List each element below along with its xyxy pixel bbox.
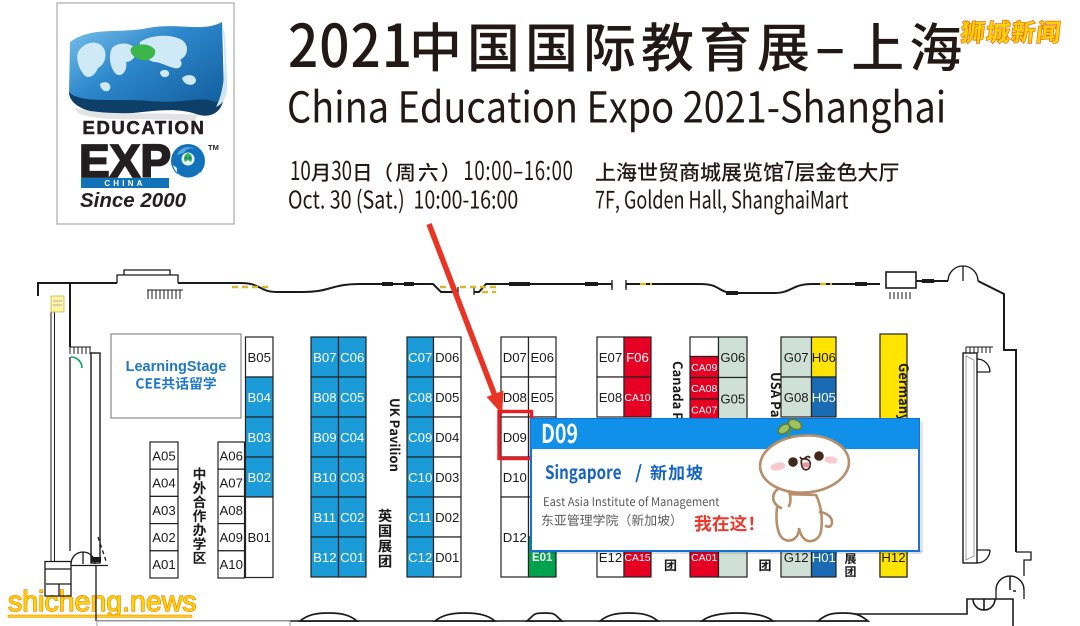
svg-text:B05: B05 <box>247 350 270 365</box>
svg-text:B10: B10 <box>313 470 336 485</box>
svg-text:Since 2000: Since 2000 <box>80 189 187 212</box>
svg-text:C05: C05 <box>340 390 364 405</box>
svg-text:D05: D05 <box>435 390 459 405</box>
svg-text:C11: C11 <box>409 510 432 525</box>
svg-text:C02: C02 <box>340 510 364 525</box>
svg-text:G08: G08 <box>784 390 809 405</box>
svg-text:D08: D08 <box>503 390 527 405</box>
svg-text:D12: D12 <box>503 530 527 545</box>
svg-text:F06: F06 <box>626 350 649 365</box>
svg-text:B04: B04 <box>247 390 270 405</box>
svg-text:LearningStage: LearningStage <box>126 359 227 375</box>
svg-text:C12: C12 <box>408 550 432 565</box>
svg-text:H06: H06 <box>812 350 836 365</box>
svg-text:D04: D04 <box>435 430 459 445</box>
svg-text:G06: G06 <box>720 350 745 365</box>
svg-text:C10: C10 <box>408 470 432 485</box>
svg-text:D06: D06 <box>435 350 459 365</box>
svg-text:C06: C06 <box>340 350 364 365</box>
svg-text:E08: E08 <box>599 390 622 405</box>
svg-text:G07: G07 <box>784 350 809 365</box>
svg-text:shicheng.news: shicheng.news <box>8 586 197 618</box>
svg-text:A02: A02 <box>152 530 175 545</box>
svg-text:A04: A04 <box>152 476 175 491</box>
svg-text:C03: C03 <box>340 470 364 485</box>
svg-text:D07: D07 <box>503 350 527 365</box>
svg-text:A07: A07 <box>219 476 242 491</box>
svg-text:B07: B07 <box>313 350 336 365</box>
svg-text:B12: B12 <box>313 550 336 565</box>
svg-text:CA10: CA10 <box>624 392 650 404</box>
svg-text:A08: A08 <box>219 503 242 518</box>
svg-text:B08: B08 <box>313 390 336 405</box>
svg-text:B03: B03 <box>247 430 270 445</box>
svg-text:E07: E07 <box>599 350 622 365</box>
svg-text:C08: C08 <box>408 390 432 405</box>
svg-text:B02: B02 <box>247 470 270 485</box>
svg-text:B01: B01 <box>247 530 270 545</box>
svg-text:D10: D10 <box>503 470 527 485</box>
svg-text:A03: A03 <box>152 503 175 518</box>
svg-text:A01: A01 <box>152 557 175 572</box>
svg-text:E05: E05 <box>530 390 553 405</box>
svg-text:D01: D01 <box>435 550 459 565</box>
svg-text:E06: E06 <box>530 350 553 365</box>
svg-text:C09: C09 <box>408 430 432 445</box>
svg-text:A09: A09 <box>219 530 242 545</box>
svg-text:CA08: CA08 <box>691 383 717 395</box>
svg-text:D09: D09 <box>503 430 527 445</box>
svg-text:CA07: CA07 <box>691 405 717 417</box>
svg-text:H05: H05 <box>812 390 836 405</box>
svg-text:CHINA: CHINA <box>104 179 145 188</box>
svg-text:CA09: CA09 <box>691 362 717 374</box>
svg-text:D02: D02 <box>435 510 459 525</box>
svg-text:G05: G05 <box>720 392 745 407</box>
svg-text:A10: A10 <box>219 557 242 572</box>
svg-text:C04: C04 <box>340 430 364 445</box>
svg-text:C01: C01 <box>340 550 364 565</box>
svg-text:B11: B11 <box>314 510 337 525</box>
svg-text:A05: A05 <box>152 448 175 463</box>
svg-text:D03: D03 <box>435 470 459 485</box>
svg-text:TM: TM <box>208 143 219 152</box>
svg-text:B09: B09 <box>313 430 336 445</box>
svg-text:A06: A06 <box>219 448 242 463</box>
svg-text:C07: C07 <box>408 350 432 365</box>
